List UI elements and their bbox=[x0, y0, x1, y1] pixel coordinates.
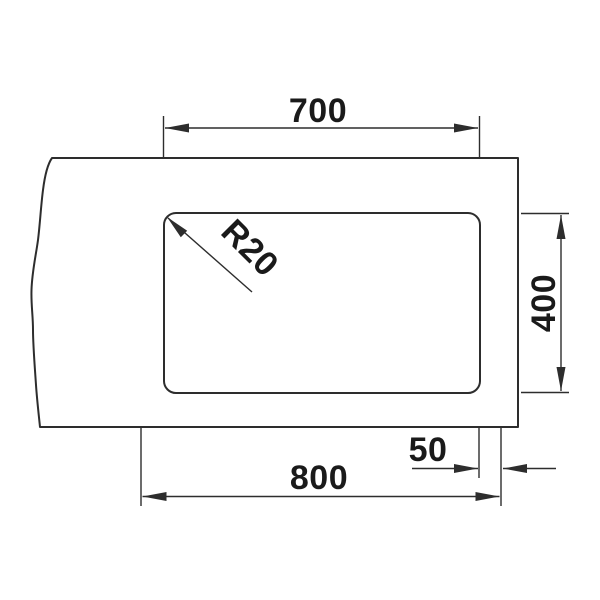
sink-cutout-technical-drawing: 700 400 R20 800 50 bbox=[0, 0, 600, 600]
arrow-cutout-width-right bbox=[454, 124, 478, 133]
sink-cutout-outline bbox=[164, 213, 480, 393]
countertop-outline bbox=[31, 158, 518, 427]
dim-label-cutout-width: 700 bbox=[289, 92, 347, 130]
dim-label-cutout-height: 400 bbox=[525, 274, 563, 332]
arrow-cutout-width-left bbox=[165, 124, 189, 133]
dimension-diagram-canvas: 700 400 R20 800 50 bbox=[0, 0, 600, 600]
arrow-corner-radius bbox=[167, 217, 187, 237]
arrowheads-layer bbox=[143, 124, 566, 502]
arrow-side-offset-right bbox=[503, 464, 527, 473]
arrow-side-offset-left bbox=[454, 464, 478, 473]
dim-label-side-offset: 50 bbox=[409, 431, 448, 469]
arrow-cutout-height-bottom bbox=[557, 367, 566, 391]
outline-layer bbox=[31, 158, 518, 427]
dim-label-overall-width: 800 bbox=[290, 459, 348, 497]
arrow-cutout-height-top bbox=[557, 215, 566, 239]
arrow-overall-width-left bbox=[143, 492, 167, 501]
arrow-overall-width-right bbox=[476, 492, 500, 501]
dimension-lines-layer bbox=[141, 116, 569, 506]
labels-layer: 700 400 R20 800 50 bbox=[214, 92, 563, 497]
dim-label-corner-radius: R20 bbox=[214, 212, 286, 284]
